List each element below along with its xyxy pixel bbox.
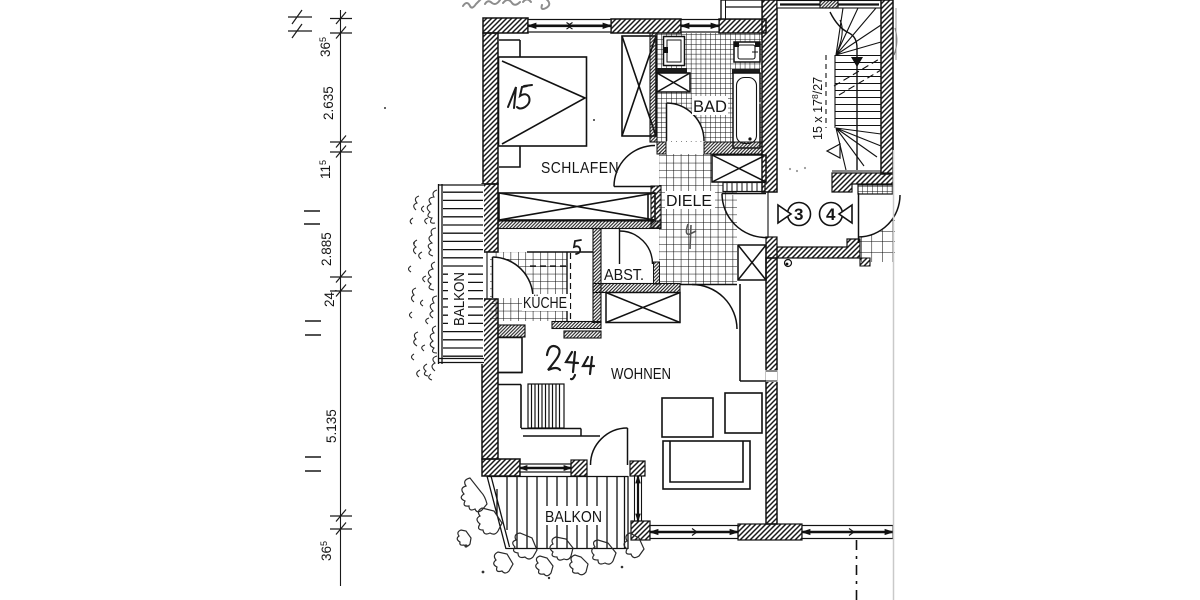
svg-text:BAD: BAD <box>693 97 727 116</box>
svg-text:2.885: 2.885 <box>319 232 334 266</box>
svg-text:BALKON: BALKON <box>452 272 468 326</box>
svg-text:SCHLAFEN: SCHLAFEN <box>541 160 619 177</box>
svg-text:KÜCHE: KÜCHE <box>523 294 567 312</box>
svg-text:BALKON: BALKON <box>545 509 602 526</box>
svg-text:ABST.: ABST. <box>604 267 644 284</box>
svg-text:5.135: 5.135 <box>324 409 339 443</box>
svg-text:WOHNEN: WOHNEN <box>611 366 671 383</box>
svg-text:3: 3 <box>794 205 803 224</box>
svg-text:15 x 178/27: 15 x 178/27 <box>810 77 825 140</box>
svg-text:DIELE: DIELE <box>666 193 712 210</box>
svg-text:2.635: 2.635 <box>321 86 336 120</box>
svg-text:4: 4 <box>826 205 836 224</box>
